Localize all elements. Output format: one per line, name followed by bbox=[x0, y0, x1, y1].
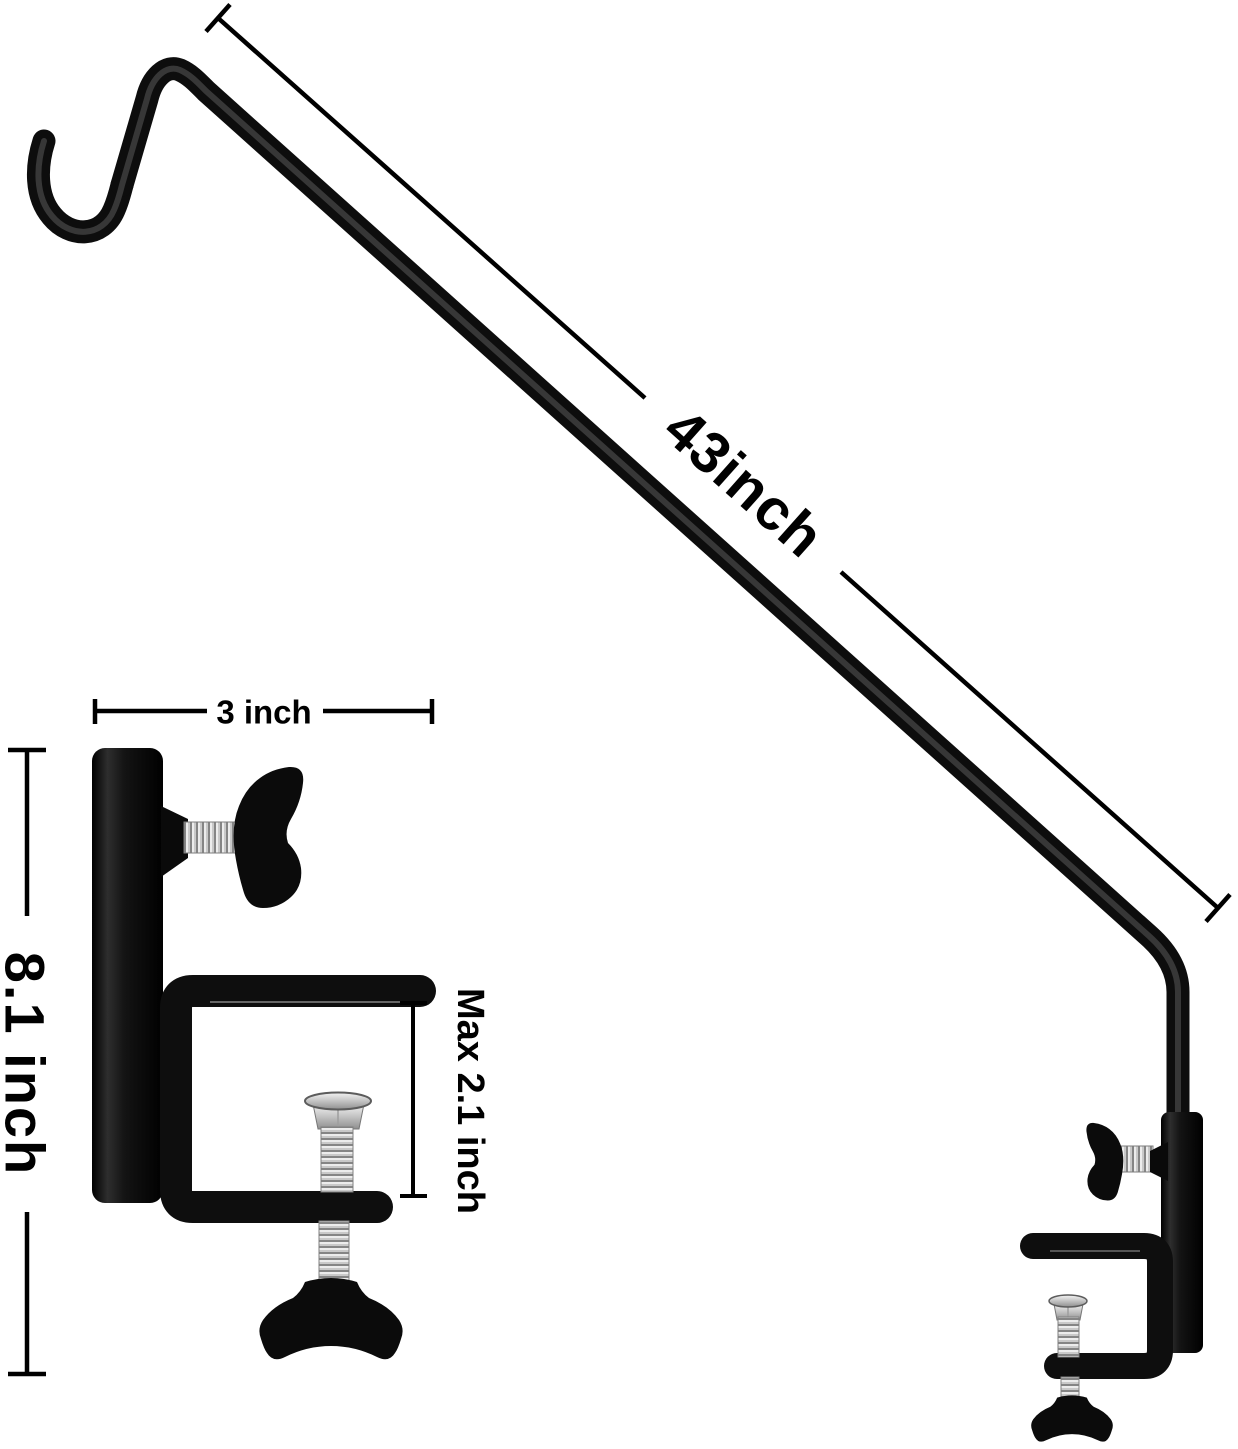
hanger-pole bbox=[122, 69, 1178, 1125]
bracket-height-label: 8.1 inch bbox=[0, 952, 57, 1177]
clamp-opening-label: Max 2.1 inch bbox=[449, 988, 491, 1214]
dim-line-segment bbox=[218, 18, 645, 398]
clamp-bolt-left bbox=[259, 1093, 402, 1360]
clamp-bracket-left bbox=[176, 991, 420, 1207]
product-dimension-diagram: 43inch 3 inch 8.1 inch Max 2.1 inch bbox=[0, 0, 1238, 1449]
bolt-thread-upper-right bbox=[1058, 1317, 1079, 1357]
knob-screw-right bbox=[1119, 1146, 1153, 1172]
bolt-thread-lower-left bbox=[319, 1221, 349, 1285]
clamp-width-label: 3 inch bbox=[216, 694, 311, 731]
star-knob-right bbox=[1086, 1123, 1123, 1201]
dimension-pole-length: 43inch bbox=[206, 5, 1230, 922]
deck-clamp-right bbox=[1031, 1112, 1203, 1442]
dim-line-segment bbox=[841, 572, 1218, 908]
clamp-detail-left bbox=[92, 748, 420, 1359]
bolt-washer-left bbox=[305, 1093, 371, 1110]
wing-knob-left bbox=[259, 1278, 402, 1359]
dimension-clamp-width: 3 inch bbox=[95, 694, 432, 731]
knob-screw-left bbox=[184, 822, 238, 853]
pole-assembly bbox=[38, 69, 1178, 1125]
mount-tube-left bbox=[92, 748, 163, 1203]
clamp-bracket-right bbox=[1033, 1246, 1160, 1366]
bolt-thread-upper-left bbox=[321, 1127, 353, 1192]
dimension-clamp-opening: Max 2.1 inch bbox=[400, 988, 491, 1214]
star-knob-left bbox=[234, 767, 304, 908]
pole-length-label: 43inch bbox=[652, 396, 837, 571]
diagram-canvas: 43inch 3 inch 8.1 inch Max 2.1 inch bbox=[0, 0, 1238, 1449]
wing-knob-right bbox=[1031, 1395, 1113, 1441]
bolt-washer-right bbox=[1049, 1295, 1087, 1307]
pole-highlight bbox=[38, 69, 1178, 1125]
dimension-bracket-height: 8.1 inch bbox=[0, 750, 57, 1374]
